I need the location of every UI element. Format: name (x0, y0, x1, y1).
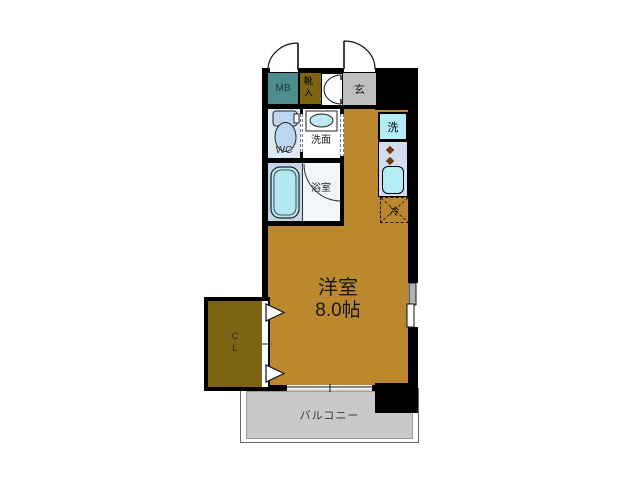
washer-label: 洗 (388, 119, 399, 135)
balcony-door-opening (287, 385, 372, 391)
shoe-box-label: 靴入 (304, 76, 316, 99)
washing-machine-box: 洗 (378, 112, 408, 141)
fridge-label: 冷 (390, 203, 400, 218)
double-door-arc (324, 75, 341, 104)
door-swing-arc (268, 41, 375, 70)
main-room-size: 8.0帖 (268, 295, 408, 322)
balcony-label: バルコニー (300, 407, 360, 423)
wall-block-bottom-right (375, 383, 418, 413)
floor-plan: バルコニー 洗 冷 (0, 0, 640, 480)
washroom-label: 洗面 (302, 131, 340, 146)
kitchen-sink-icon (382, 166, 404, 194)
entrance-label: 玄 (342, 72, 377, 106)
wall-right-upper (408, 68, 418, 283)
washroom-door-opening (340, 114, 344, 156)
bathtub-room-floor (268, 163, 302, 221)
wc-label: WC (268, 145, 300, 156)
closet-label: C L (208, 330, 262, 354)
wall-bath-mainroom (262, 221, 344, 226)
bathroom-label: 浴室 (302, 179, 340, 194)
meter-box-label: MB (267, 72, 299, 105)
fridge-dashed-box: 冷 (380, 197, 409, 223)
wall-right-lower (408, 327, 418, 385)
window-symbol (407, 283, 416, 327)
